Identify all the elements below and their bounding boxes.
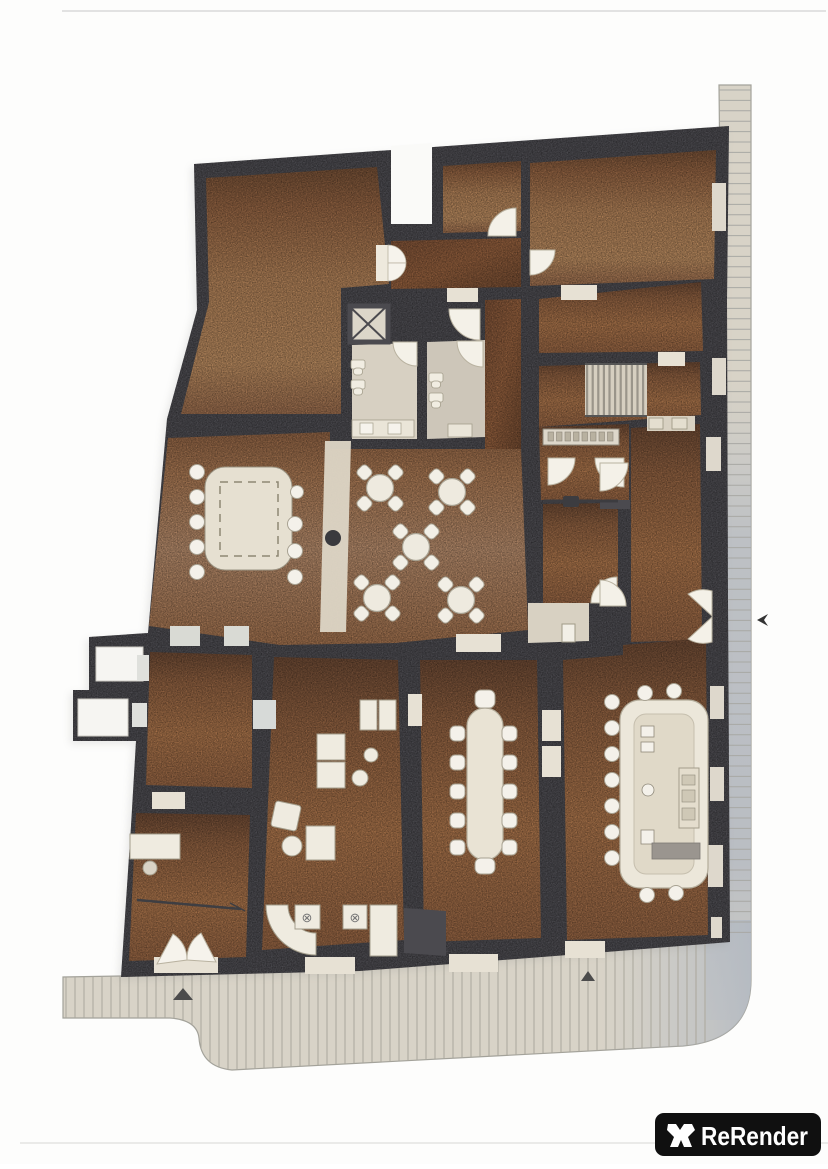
svg-text:⊗: ⊗ (302, 910, 313, 925)
svg-text:ReRender: ReRender (701, 1121, 808, 1151)
svg-text:⊗: ⊗ (350, 910, 361, 925)
